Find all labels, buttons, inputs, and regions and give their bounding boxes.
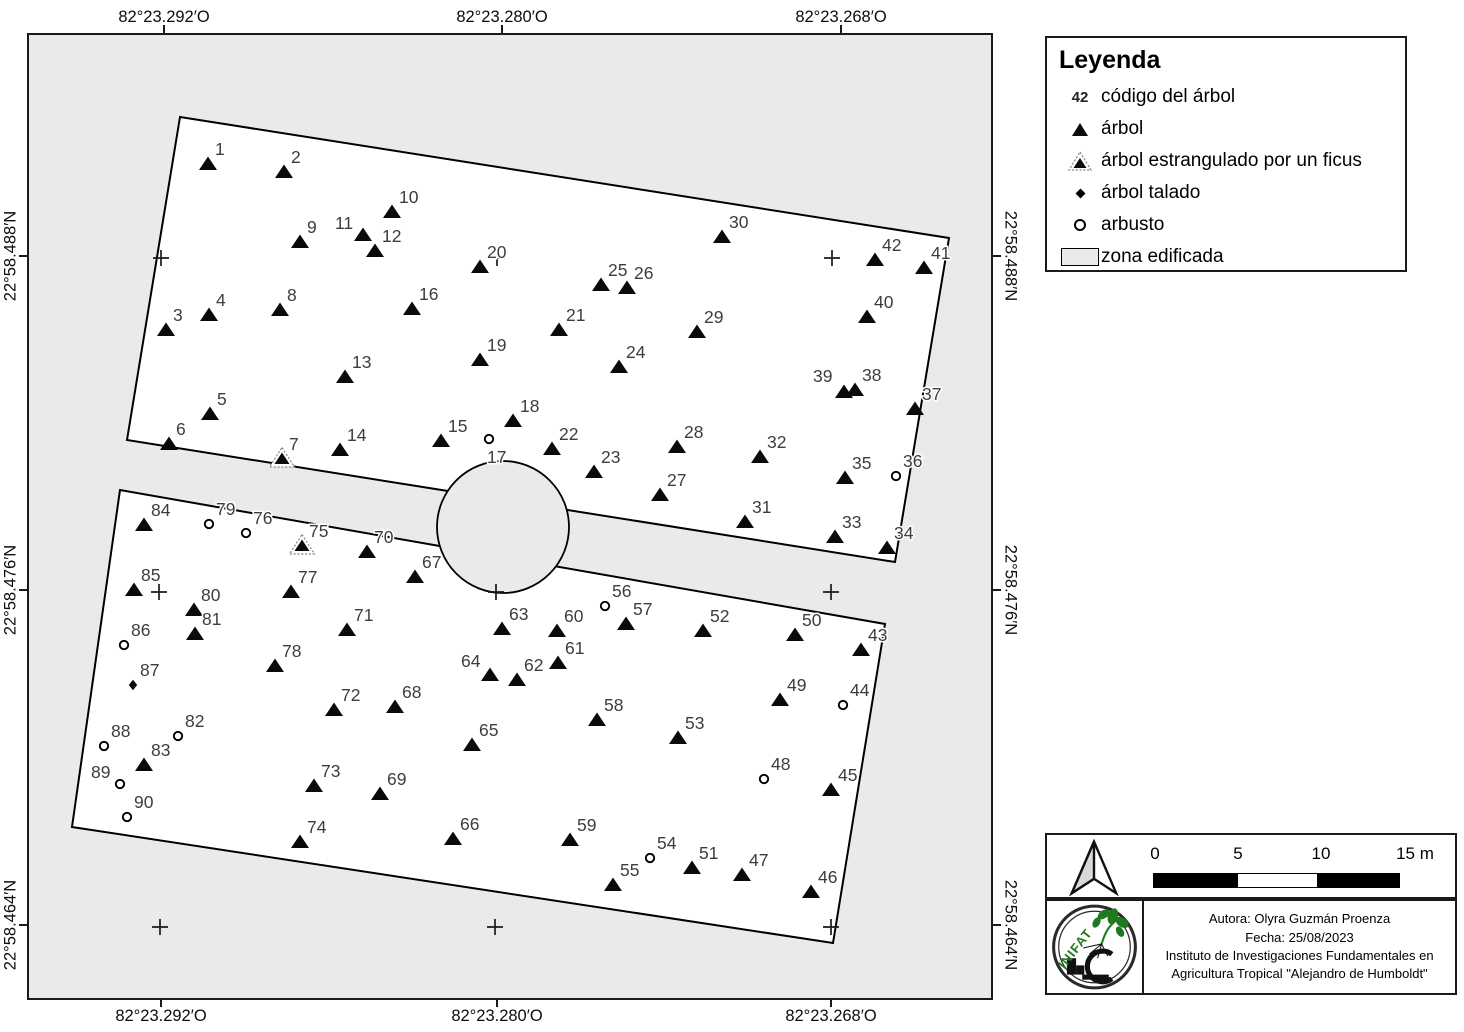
longitude-label-top-2: 82°23.280′O — [456, 8, 547, 27]
latitude-label-left-1: 22°58.488′N — [2, 211, 21, 301]
tree-label-85: 85 — [141, 565, 160, 585]
tree-label-27: 27 — [667, 470, 686, 490]
tree-label-46: 46 — [818, 867, 837, 887]
longitude-label-bottom-1: 82°23.292′O — [115, 1007, 206, 1026]
tree-label-65: 65 — [479, 720, 498, 740]
tree-label-70: 70 — [374, 527, 394, 547]
tree-label-2: 2 — [291, 147, 301, 167]
tree-label-68: 68 — [402, 682, 421, 702]
tree-code-sample: 42 — [1059, 89, 1101, 106]
tree-label-60: 60 — [564, 606, 584, 626]
scale-label-15m: 15 m — [1396, 844, 1434, 864]
tree-marker-88 — [100, 742, 108, 750]
tree-label-21: 21 — [566, 305, 585, 325]
tree-label-69: 69 — [387, 769, 406, 789]
legend-item-built-zone: zona edificada — [1059, 241, 1395, 273]
strangled-tree-icon — [1067, 150, 1093, 172]
tree-label-73: 73 — [321, 761, 340, 781]
tree-label-43: 43 — [868, 625, 887, 645]
tree-label-78: 78 — [282, 641, 301, 661]
map-canvas: 1234567891011121314151617181920212223242… — [27, 33, 993, 1000]
tree-marker-36 — [892, 472, 900, 480]
tree-label-81: 81 — [202, 609, 221, 629]
tree-label-57: 57 — [633, 599, 652, 619]
tree-label-42: 42 — [882, 235, 901, 255]
tree-label-16: 16 — [419, 284, 438, 304]
tree-label-84: 84 — [151, 500, 171, 520]
tree-label-76: 76 — [253, 508, 272, 528]
tree-marker-76 — [242, 529, 250, 537]
tree-label-15: 15 — [448, 416, 467, 436]
tree-label-90: 90 — [134, 792, 154, 812]
tree-label-37: 37 — [922, 384, 941, 404]
tree-label-66: 66 — [460, 814, 479, 834]
tree-label-38: 38 — [862, 365, 881, 385]
tree-marker-48 — [760, 775, 768, 783]
building-circle — [437, 461, 569, 593]
tree-label-48: 48 — [771, 754, 790, 774]
tree-label-34: 34 — [894, 523, 914, 543]
tree-label-61: 61 — [565, 638, 584, 658]
tree-label-47: 47 — [749, 850, 768, 870]
tree-label-87: 87 — [140, 660, 159, 680]
tree-label-59: 59 — [577, 815, 596, 835]
tree-label-9: 9 — [307, 217, 317, 237]
tree-label-30: 30 — [729, 212, 749, 232]
tree-label-82: 82 — [185, 711, 204, 731]
tree-label-20: 20 — [487, 242, 507, 262]
tree-label-52: 52 — [710, 606, 729, 626]
tree-label-26: 26 — [634, 263, 653, 283]
credit-date: Fecha: 25/08/2023 — [1245, 929, 1353, 947]
tree-marker-89 — [116, 780, 124, 788]
tree-label-88: 88 — [111, 721, 130, 741]
credit-institute-2: Agricultura Tropical "Alejandro de Humbo… — [1171, 965, 1427, 983]
axis-tick — [496, 999, 498, 1007]
tree-label-10: 10 — [399, 187, 419, 207]
tree-label-64: 64 — [461, 651, 481, 671]
built-zone-swatch — [1061, 248, 1099, 266]
legend-title: Leyenda — [1059, 46, 1395, 75]
legend-item-shrub: arbusto — [1059, 209, 1395, 241]
graticule-cross — [152, 919, 168, 935]
scale-label-10: 10 — [1312, 844, 1331, 864]
tree-label-86: 86 — [131, 620, 150, 640]
shrub-icon — [1074, 219, 1086, 231]
tree-label-24: 24 — [626, 342, 646, 362]
tree-label-45: 45 — [838, 765, 857, 785]
tree-label-3: 3 — [173, 305, 183, 325]
scale-label-5: 5 — [1233, 844, 1242, 864]
north-arrow-icon — [1065, 838, 1123, 898]
graticule-cross — [823, 584, 839, 600]
tree-label-62: 62 — [524, 655, 543, 675]
tree-label-74: 74 — [307, 817, 327, 837]
tree-label-6: 6 — [176, 419, 186, 439]
credit-author: Autora: Olyra Guzmán Proenza — [1209, 910, 1390, 928]
tree-label-35: 35 — [852, 453, 871, 473]
map-layer: 1234567891011121314151617181920212223242… — [29, 35, 991, 998]
axis-tick — [160, 999, 162, 1007]
tree-label-77: 77 — [298, 567, 317, 587]
tree-label-40: 40 — [874, 292, 894, 312]
longitude-label-top-3: 82°23.268′O — [795, 8, 886, 27]
tree-label-19: 19 — [487, 335, 506, 355]
tree-label-14: 14 — [347, 425, 367, 445]
tree-label-89: 89 — [91, 762, 110, 782]
tree-label-29: 29 — [704, 307, 723, 327]
credit-institute-1: Instituto de Investigaciones Fundamental… — [1165, 947, 1433, 965]
inifat-logo: INIFAT — [1045, 899, 1144, 995]
tree-label-28: 28 — [684, 422, 703, 442]
tree-label-13: 13 — [352, 352, 371, 372]
credits: Autora: Olyra Guzmán Proenza Fecha: 25/0… — [1142, 899, 1457, 995]
tree-label-83: 83 — [151, 740, 170, 760]
tree-label-41: 41 — [931, 243, 950, 263]
tree-marker-56 — [601, 602, 609, 610]
tree-label-39: 39 — [813, 366, 832, 386]
tree-label-36: 36 — [903, 451, 922, 471]
latitude-label-right-2: 22°58.476′N — [1001, 545, 1020, 635]
tree-label-25: 25 — [608, 260, 627, 280]
tree-label-55: 55 — [620, 860, 639, 880]
inifat-logo-graphic — [1047, 901, 1142, 993]
tree-label-56: 56 — [612, 581, 631, 601]
longitude-label-bottom-2: 82°23.280′O — [451, 1007, 542, 1026]
tree-label-32: 32 — [767, 432, 786, 452]
tree-marker-79 — [205, 520, 213, 528]
latitude-label-left-3: 22°58.464′N — [2, 880, 21, 970]
scale-bar — [1153, 873, 1400, 888]
tree-label-67: 67 — [422, 552, 441, 572]
felled-tree-icon — [1075, 188, 1085, 198]
tree-label-49: 49 — [787, 675, 806, 695]
tree-marker-44 — [839, 701, 847, 709]
tree-label-44: 44 — [850, 680, 870, 700]
map-page: 1234567891011121314151617181920212223242… — [0, 0, 1464, 1032]
tree-label-7: 7 — [289, 434, 299, 454]
tree-icon — [1072, 123, 1088, 136]
tree-label-11: 11 — [335, 213, 353, 233]
tree-label-71: 71 — [354, 605, 373, 625]
tree-label-80: 80 — [201, 585, 221, 605]
legend-item-felled-tree: árbol talado — [1059, 177, 1395, 209]
legend-item-strangled-tree: árbol estrangulado por un ficus — [1059, 145, 1395, 177]
legend-item-tree: árbol — [1059, 113, 1395, 145]
latitude-label-right-1: 22°58.488′N — [1001, 211, 1020, 301]
tree-label-75: 75 — [309, 521, 328, 541]
graticule-cross — [487, 919, 503, 935]
latitude-label-right-3: 22°58.464′N — [1001, 880, 1020, 970]
tree-label-33: 33 — [842, 512, 861, 532]
scale-label-0: 0 — [1150, 844, 1159, 864]
tree-label-31: 31 — [752, 497, 771, 517]
tree-marker-17 — [485, 435, 493, 443]
longitude-label-bottom-3: 82°23.268′O — [785, 1007, 876, 1026]
tree-label-63: 63 — [509, 604, 528, 624]
tree-label-58: 58 — [604, 695, 623, 715]
tree-label-53: 53 — [685, 713, 704, 733]
longitude-label-top-1: 82°23.292′O — [118, 8, 209, 27]
legend-item-tree-code: 42 código del árbol — [1059, 81, 1395, 113]
tree-label-22: 22 — [559, 424, 578, 444]
tree-marker-86 — [120, 641, 128, 649]
tree-marker-54 — [646, 854, 654, 862]
tree-label-8: 8 — [287, 285, 297, 305]
tree-label-12: 12 — [382, 226, 401, 246]
tree-label-50: 50 — [802, 610, 822, 630]
tree-label-5: 5 — [217, 389, 227, 409]
tree-label-51: 51 — [699, 843, 718, 863]
axis-tick — [830, 999, 832, 1007]
tree-label-79: 79 — [216, 499, 235, 519]
tree-label-17: 17 — [487, 447, 506, 467]
tree-label-54: 54 — [657, 833, 677, 853]
tree-label-1: 1 — [215, 139, 225, 159]
tree-label-18: 18 — [520, 396, 539, 416]
legend: Leyenda 42 código del árbol árbol árbol … — [1045, 36, 1407, 272]
tree-label-4: 4 — [216, 290, 226, 310]
scale-box: 0 5 10 15 m — [1045, 833, 1457, 899]
latitude-label-left-2: 22°58.476′N — [2, 545, 21, 635]
tree-label-72: 72 — [341, 685, 360, 705]
tree-marker-82 — [174, 732, 182, 740]
tree-label-23: 23 — [601, 447, 620, 467]
tree-marker-90 — [123, 813, 131, 821]
